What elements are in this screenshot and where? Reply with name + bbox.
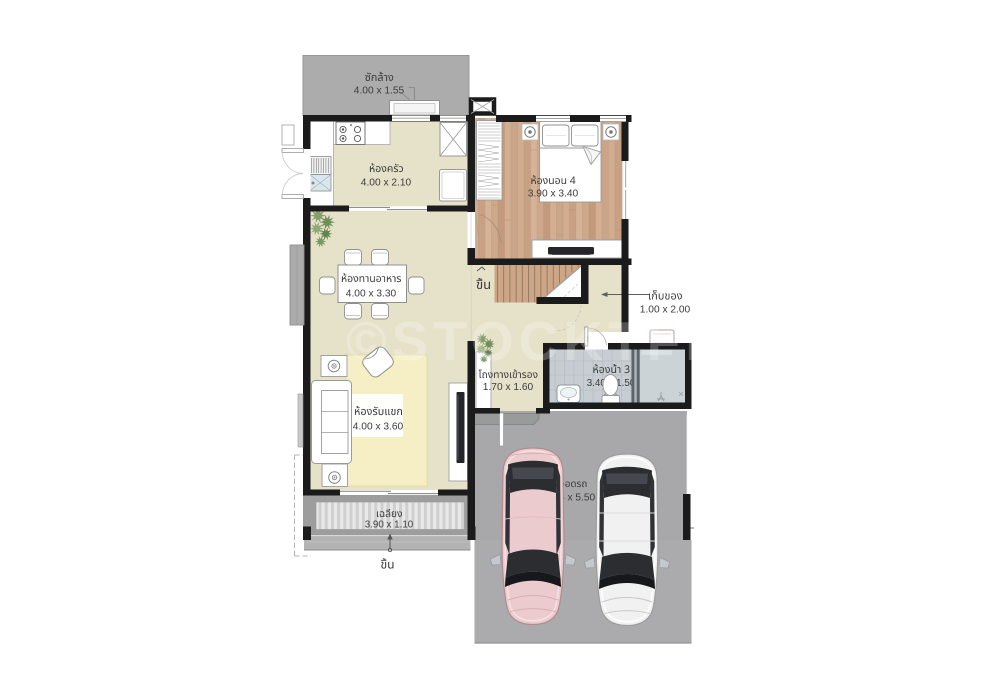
svg-text:©STOCKTFB: ©STOCKTFB (346, 310, 730, 372)
svg-text:4.00 x 2.10: 4.00 x 2.10 (361, 178, 412, 189)
svg-text:3.90 x 3.40: 3.90 x 3.40 (528, 189, 579, 200)
svg-text:3.90 x 1.10: 3.90 x 1.10 (365, 520, 414, 531)
svg-text:4.00 x 3.30: 4.00 x 3.30 (346, 289, 397, 300)
svg-text:1.70 x 1.60: 1.70 x 1.60 (483, 382, 534, 393)
svg-text:4.00 x 1.55: 4.00 x 1.55 (354, 86, 405, 97)
svg-text:4.00 x 3.60: 4.00 x 3.60 (353, 422, 404, 433)
